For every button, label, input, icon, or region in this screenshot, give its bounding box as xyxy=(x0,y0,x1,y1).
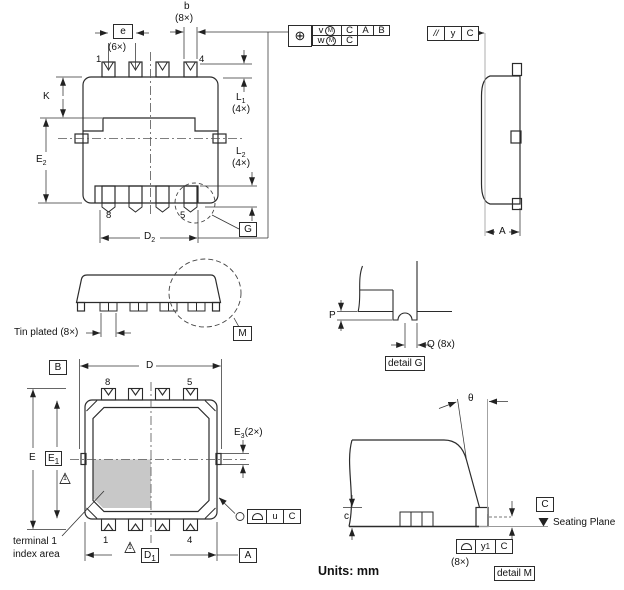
dim-e3-label: E3(2×) xyxy=(234,427,263,438)
dim-b-label: b xyxy=(184,1,190,12)
parallelism-symbol: // xyxy=(427,26,445,41)
detail-m-zone-circle xyxy=(169,259,241,327)
datum-a-box: A xyxy=(239,548,257,563)
tolerance-value-y: y xyxy=(444,26,462,41)
tolerance-value-u: u xyxy=(266,509,284,524)
bottom-view-pin-1: 1 xyxy=(103,535,108,546)
seating-plane-label: Seating Plane xyxy=(553,517,615,528)
profile-symbol-icon xyxy=(252,513,263,520)
detail-g-caption: detail G xyxy=(385,356,425,371)
dim-a-label: A xyxy=(499,226,506,237)
units-label: Units: mm xyxy=(318,564,379,578)
detail-g-callout: G xyxy=(239,222,257,237)
top-pin-4: 4 xyxy=(199,54,204,65)
detail-m-drawing xyxy=(349,440,488,527)
note-flag-1: △1 xyxy=(57,470,73,485)
top-pin-8: 8 xyxy=(106,210,111,221)
dim-l1-label: L1 xyxy=(236,92,245,103)
front-view-drawing xyxy=(77,275,221,311)
profile-surface-symbol xyxy=(456,539,476,554)
detail-g-drawing xyxy=(358,261,452,320)
dim-e1-label: E1 xyxy=(45,451,62,466)
dim-p-label: P xyxy=(329,310,336,321)
tin-plated-note: Tin plated (8×) xyxy=(14,327,78,338)
detail-m-dimensions xyxy=(343,399,512,546)
tolerance-value-w: wM xyxy=(312,35,342,46)
datum-ref-c: C xyxy=(341,35,358,46)
drawing-canvas xyxy=(0,0,624,590)
note-flag-1: △1 xyxy=(122,539,138,554)
side-view-drawing xyxy=(482,64,522,210)
datum-ref-c: C xyxy=(495,539,513,554)
detail-m-callout: M xyxy=(233,326,252,341)
position-symbol: ⊕ xyxy=(288,25,312,47)
top-view-dimensions xyxy=(38,27,484,243)
y1-count-label: (8×) xyxy=(451,557,469,568)
datum-b-box: B xyxy=(49,360,67,375)
dim-k-label: K xyxy=(43,91,50,102)
bottom-view-pin-4: 4 xyxy=(187,535,192,546)
dim-l2-count: (4×) xyxy=(232,158,250,169)
dim-c-label: c xyxy=(344,511,349,522)
mmc-modifier-icon: M xyxy=(325,26,335,36)
dim-e2-label: E2 xyxy=(36,154,47,165)
terminal1-note-line2: index area xyxy=(13,549,60,560)
bottom-view-pin-5: 5 xyxy=(187,377,192,388)
datum-c-box: C xyxy=(536,497,554,512)
top-pin-5: 5 xyxy=(180,210,185,221)
dim-e-label: E xyxy=(27,452,38,463)
profile-surface-symbol xyxy=(247,509,267,524)
profile-tolerance-frame-u: u C xyxy=(247,509,301,524)
datum-ref-c: C xyxy=(461,26,479,41)
dim-d1-label: D1 xyxy=(141,548,159,563)
detail-m-caption: detail M xyxy=(494,566,535,581)
dim-e-count: (6×) xyxy=(108,42,126,53)
dim-d-label: D xyxy=(143,360,156,371)
package-outline-drawing: b (8×) e (6×) 1 4 K L1 (4×) E2 L2 (4×) 8… xyxy=(0,0,624,590)
dim-l2-label: L2 xyxy=(236,146,245,157)
parallelism-tolerance-frame: // y C xyxy=(427,26,479,41)
dim-theta-label: θ xyxy=(468,393,474,404)
bottom-view-pin-8: 8 xyxy=(105,377,110,388)
dim-b-count: (8×) xyxy=(175,13,193,24)
mmc-modifier-icon: M xyxy=(326,36,336,46)
dim-e-label: e xyxy=(113,24,133,39)
tolerance-value-y1: y1 xyxy=(475,539,496,554)
seating-plane-triangle-icon xyxy=(539,518,549,527)
top-pin-1: 1 xyxy=(96,54,101,65)
position-tolerance-frame: ⊕ vM C A B wM C xyxy=(288,25,390,47)
terminal1-index-area-fill xyxy=(94,460,152,509)
dim-l1-count: (4×) xyxy=(232,104,250,115)
profile-tolerance-frame-y1: y1 C xyxy=(456,539,513,554)
profile-symbol-icon xyxy=(461,543,472,550)
dim-q-label: Q (8x) xyxy=(427,339,455,350)
terminal1-note-line1: terminal 1 xyxy=(13,536,57,547)
dim-d2-label: D2 xyxy=(142,231,157,242)
datum-ref-c: C xyxy=(283,509,301,524)
